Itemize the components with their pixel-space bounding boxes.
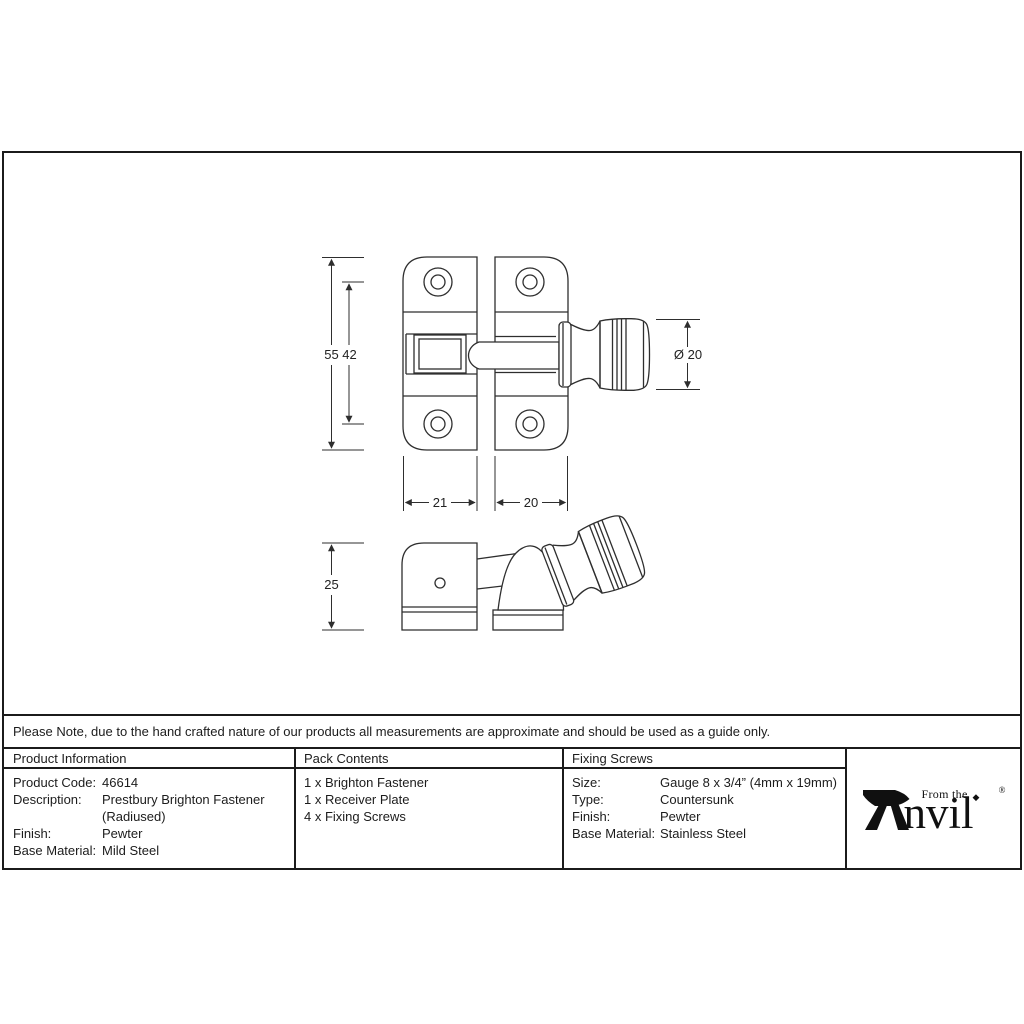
fixing-screws-column: Fixing Screws Size: Gauge 8 x 3/4” (4mm …: [562, 749, 845, 868]
row-label: Size:: [572, 774, 660, 791]
table-row: Product Code: 46614: [13, 774, 288, 791]
row-value: 46614: [102, 774, 288, 791]
table-row: Finish: Pewter: [13, 825, 288, 842]
row-value: Pewter: [660, 808, 845, 825]
table-row: Type: Countersunk: [572, 791, 845, 808]
list-item: 1 x Brighton Fastener: [304, 774, 554, 791]
row-value: Prestbury Brighton Fastener (Radiused): [102, 791, 288, 825]
note-row: Please Note, due to the hand crafted nat…: [4, 714, 1020, 747]
table-row: Size: Gauge 8 x 3/4” (4mm x 19mm): [572, 774, 845, 791]
table-row: Base Material: Mild Steel: [13, 842, 288, 859]
product-information-body: Product Code: 46614 Description: Prestbu…: [4, 769, 294, 868]
fixing-screws-header: Fixing Screws: [564, 749, 845, 769]
brand-logo-cell: From the ◆ nvil ®: [845, 749, 1020, 868]
registered-trademark: ®: [999, 785, 1006, 795]
diagram-area: [4, 153, 1020, 714]
list-item: 4 x Fixing Screws: [304, 808, 554, 825]
row-label: Description:: [13, 791, 102, 825]
row-value: Countersunk: [660, 791, 845, 808]
row-label: Base Material:: [13, 842, 102, 859]
product-information-header: Product Information: [4, 749, 294, 769]
list-item: 1 x Receiver Plate: [304, 791, 554, 808]
row-value: Pewter: [102, 825, 288, 842]
row-label: Base Material:: [572, 825, 660, 842]
row-value: Mild Steel: [102, 842, 288, 859]
table-row: Base Material: Stainless Steel: [572, 825, 845, 842]
pack-contents-body: 1 x Brighton Fastener 1 x Receiver Plate…: [296, 769, 562, 868]
diamond-icon: ◆: [973, 792, 980, 803]
row-label: Type:: [572, 791, 660, 808]
row-value: Gauge 8 x 3/4” (4mm x 19mm): [660, 774, 845, 791]
spec-table: Product Information Product Code: 46614 …: [4, 747, 1020, 868]
anvil-icon: [862, 786, 910, 831]
logo-wordmark: nvil: [904, 794, 974, 832]
note-text: Please Note, due to the hand crafted nat…: [13, 724, 770, 739]
pack-contents-column: Pack Contents 1 x Brighton Fastener 1 x …: [294, 749, 562, 868]
from-the-anvil-logo: From the ◆ nvil ®: [862, 785, 1006, 832]
row-label: Product Code:: [13, 774, 102, 791]
sheet-frame: Please Note, due to the hand crafted nat…: [2, 151, 1022, 870]
table-row: Description: Prestbury Brighton Fastener…: [13, 791, 288, 825]
pack-contents-header: Pack Contents: [296, 749, 562, 769]
row-label: Finish:: [572, 808, 660, 825]
table-row: Finish: Pewter: [572, 808, 845, 825]
row-label: Finish:: [13, 825, 102, 842]
fixing-screws-body: Size: Gauge 8 x 3/4” (4mm x 19mm) Type: …: [564, 769, 845, 868]
product-information-column: Product Information Product Code: 46614 …: [4, 749, 294, 868]
row-value: Stainless Steel: [660, 825, 845, 842]
